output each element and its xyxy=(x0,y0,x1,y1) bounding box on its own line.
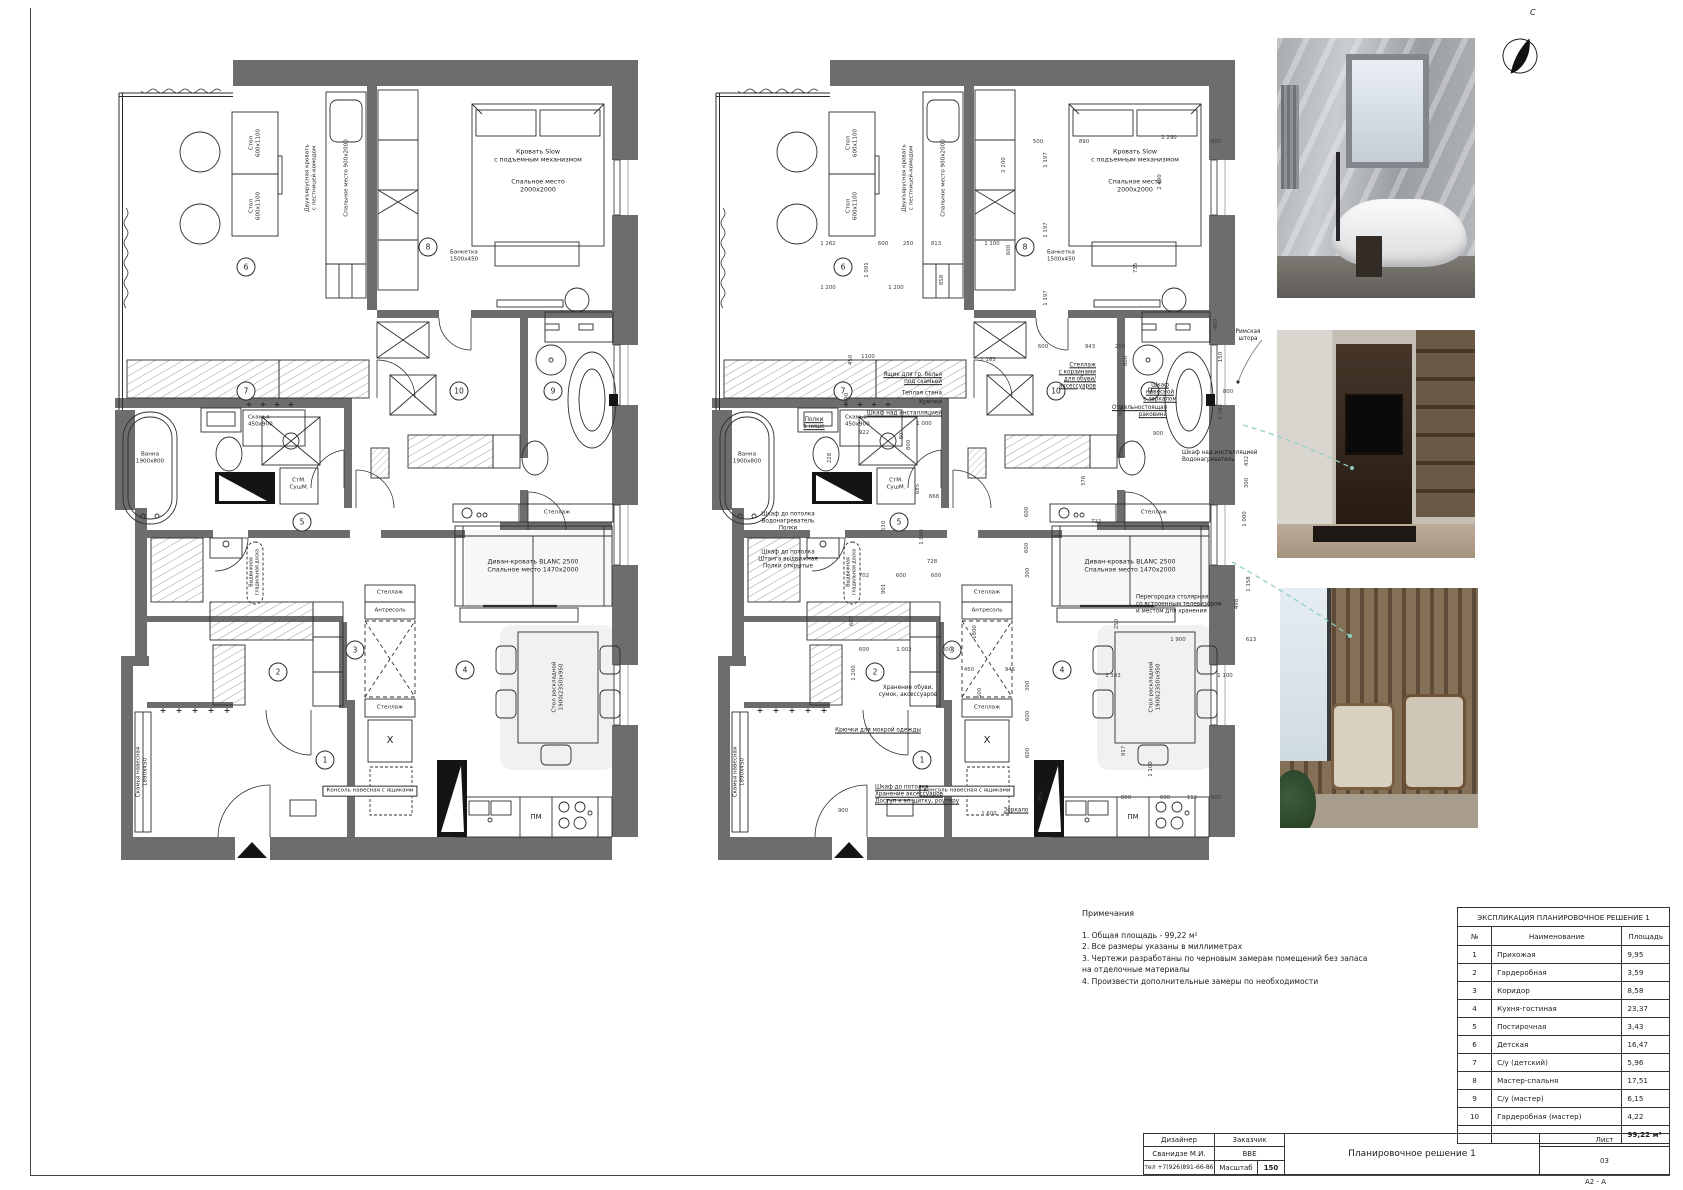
bath-window xyxy=(1346,54,1429,168)
room-number: 3 xyxy=(943,641,962,660)
plan-label: Кровать Slow с подъемным механизмом xyxy=(1091,148,1179,163)
table-row: 10Гардеробная (мастер)4,22 xyxy=(1458,1108,1670,1126)
dimension-label: 2 200 xyxy=(1001,157,1007,172)
dimension-label: 150 xyxy=(1218,352,1224,362)
dimension-label: 1 200 xyxy=(851,665,857,680)
room-number: 5 xyxy=(293,513,312,532)
room-number: 10 xyxy=(450,382,469,401)
dimension-label: 1 600 xyxy=(981,811,996,817)
dimension-label: 722 xyxy=(1091,519,1101,525)
legend-col-num: № xyxy=(1458,927,1492,946)
annotation-label: Шкаф до потолка Штанга выдвижная Полки о… xyxy=(758,550,817,571)
plan-label: X xyxy=(387,735,394,747)
room-number: 8 xyxy=(419,238,438,257)
plan-label: Ванна 1900х800 xyxy=(136,451,164,464)
room-number: 1 xyxy=(913,751,932,770)
floor-plan-left-labels: Стол 600х1100Стол 600х1100Двухъярусная к… xyxy=(115,60,640,860)
dimension-label: 500 xyxy=(1033,139,1043,145)
plan-label: Двухъярусная кровать с лестницей-комодом xyxy=(304,144,317,211)
table-row: 6Детская16,47 xyxy=(1458,1036,1670,1054)
client-name: ВВЕ xyxy=(1214,1146,1285,1161)
plan-label: ПМ xyxy=(530,813,541,821)
annotation-label: Зеркало xyxy=(1004,808,1029,815)
notes-title: Примечания xyxy=(1082,908,1382,920)
dimension-label: 450 xyxy=(964,667,974,673)
annotation-label: Ящик для гр. белья под скамьей xyxy=(883,372,942,386)
designer-name: Сванидзе М.И. xyxy=(1143,1146,1215,1161)
dimension-label: 250 xyxy=(1115,344,1125,350)
note-line: 1. Общая площадь - 99,22 м² xyxy=(1082,930,1382,941)
dimension-label: 1 700 xyxy=(1218,404,1224,419)
dimension-label: 1 000 xyxy=(916,421,931,427)
plan-label: Консоль навесная с ящиками xyxy=(322,786,417,797)
dimension-label: 1 000 xyxy=(1242,511,1248,526)
dimension-label: 852 xyxy=(1038,791,1044,801)
notes-block: Примечания 1. Общая площадь - 99,22 м² 2… xyxy=(1082,908,1382,987)
plan-label: Стол 600х1100 xyxy=(845,129,858,157)
legend-col-area: Площадь xyxy=(1622,927,1670,946)
dimension-label: 943 xyxy=(1085,344,1095,350)
armchairs-photo xyxy=(1280,588,1478,828)
dimension-label: 80 xyxy=(899,433,905,440)
dimension-label: 600 xyxy=(896,573,906,579)
dimension-label: 668 xyxy=(929,494,939,500)
dimension-label: 498 xyxy=(1234,599,1240,609)
plan-label: Ванна 1900х800 xyxy=(733,451,761,464)
title-block: Дизайнер Заказчик Сванидзе М.И. ВВЕ тел … xyxy=(1143,1133,1670,1175)
dimension-label: 800 xyxy=(1121,795,1131,801)
plan-label: Банкетка 1500х450 xyxy=(450,249,478,262)
dimension-label: 1 100 xyxy=(1217,673,1232,679)
north-letter: С xyxy=(1530,8,1536,17)
dimension-label: 600 xyxy=(1119,447,1125,457)
dimension-label: 917 xyxy=(1121,746,1127,756)
tv-screen xyxy=(1345,394,1402,456)
plan-label: Антресоль xyxy=(374,608,405,615)
dimension-label: 600 xyxy=(1024,507,1030,517)
dimension-label: 1 900 xyxy=(1170,637,1185,643)
dimension-label: 938 xyxy=(1118,406,1124,416)
plan-label: Стеллаж xyxy=(377,705,403,712)
dimension-label: 900 xyxy=(1153,431,1163,437)
dimension-label: 600 xyxy=(1024,543,1030,553)
room-legend-table: ЭКСПЛИКАЦИЯ ПЛАНИРОВОЧНОЕ РЕШЕНИЕ 1 № На… xyxy=(1457,907,1670,1144)
sheet-title: Планировочное решение 1 xyxy=(1284,1133,1540,1175)
room-number: 6 xyxy=(834,258,853,277)
plan-label: Скамья навесная 1890х450 xyxy=(732,747,745,798)
table-row: 2Гардеробная3,59 xyxy=(1458,964,1670,982)
faucet-shape xyxy=(1336,152,1340,240)
sheet-frame-bottom xyxy=(30,1175,1670,1176)
dimension-label: 1 197 xyxy=(1043,222,1049,237)
dimension-label: 728 xyxy=(927,559,937,565)
dimension-label: 800 xyxy=(1123,356,1129,366)
plan-label: Диван-кровать BLANC 2500 Спальное место … xyxy=(487,558,578,573)
dimension-label: 687 xyxy=(849,616,855,626)
plan-label: Стол 600х1100 xyxy=(248,192,261,220)
dimension-label: 1 060 xyxy=(919,529,925,544)
note-line: на отделочные материалы xyxy=(1082,964,1382,975)
legend-col-name: Наименование xyxy=(1492,927,1622,946)
table-row: 5Постирочная3,43 xyxy=(1458,1018,1670,1036)
bathroom-photo xyxy=(1277,38,1475,298)
note-line: 4. Произвести дополнительные замеры по н… xyxy=(1082,976,1382,987)
annotation-label: Римская штора xyxy=(1236,329,1261,343)
plan-label: Спальное место 2000х2000 xyxy=(1108,178,1162,193)
annotation-label: Перегородка столярная со встроенным теле… xyxy=(1136,595,1222,616)
dimension-label: 800 xyxy=(1223,389,1233,395)
dimension-label: 922 xyxy=(859,430,869,436)
dimension-label: 1 002 xyxy=(896,647,911,653)
legend-title: ЭКСПЛИКАЦИЯ ПЛАНИРОВОЧНОЕ РЕШЕНИЕ 1 xyxy=(1458,908,1670,927)
plan-label: Скамья навесная 1890х450 xyxy=(135,747,148,798)
client-label: Заказчик xyxy=(1214,1133,1285,1147)
plan-label: Стеллаж xyxy=(544,510,570,517)
annotation-label: Теплая стена xyxy=(902,391,942,398)
annotation-label: Хранение обуви, сумок, аксессуаров xyxy=(879,685,937,699)
dimension-label: 800 xyxy=(906,440,912,450)
dimension-label: 530 xyxy=(881,521,887,531)
dimension-label: 1 100 xyxy=(984,241,999,247)
dimension-label: 1800 xyxy=(972,625,978,639)
plan-label: Банкетка 1500х450 xyxy=(1047,249,1075,262)
room-number: 5 xyxy=(890,513,909,532)
shelf-wall xyxy=(1416,330,1475,517)
plan-label: Стол 600х1100 xyxy=(248,129,261,157)
annotation-label: Полки в нише xyxy=(803,417,824,431)
armchair-2 xyxy=(1403,694,1466,790)
dimension-label: 1 197 xyxy=(1043,152,1049,167)
dimension-label: 400 xyxy=(1213,319,1219,329)
north-arrow: С xyxy=(1492,8,1548,92)
floor-plan-right-labels: Стол 600х1100Стол 600х1100Двухъярусная к… xyxy=(712,60,1272,860)
dimension-label: 432 xyxy=(1244,456,1250,466)
drawing-sheet: С xyxy=(0,0,1683,1190)
armchair-1 xyxy=(1331,703,1394,789)
note-line: 2. Все размеры указаны в миллиметрах xyxy=(1082,941,1382,952)
dimension-label: 1 100 xyxy=(1148,761,1154,776)
dimension-label: 600 xyxy=(1006,245,1012,255)
plan-label: Выдвижная гладильная доска xyxy=(249,549,261,595)
dimension-label: 1100 xyxy=(861,354,875,360)
plan-label: СтМ. СушМ. xyxy=(290,477,309,490)
annotation-label: Шкаф над инсталляцией xyxy=(867,411,942,418)
dimension-label: 1 200 xyxy=(888,285,903,291)
dimension-label: 1 091 xyxy=(864,262,870,277)
format-label: A2 - A xyxy=(1585,1178,1606,1186)
plan-label: Стеллаж xyxy=(377,590,403,597)
dimension-label: 1 262 xyxy=(820,241,835,247)
table-row: 9С/у (мастер)6,15 xyxy=(1458,1090,1670,1108)
dimension-label: 1 197 xyxy=(1043,290,1049,305)
designer-label: Дизайнер xyxy=(1143,1133,1215,1147)
room-number: 3 xyxy=(346,641,365,660)
dimension-label: 735 xyxy=(1133,263,1139,273)
plan-label: Стол 600х1100 xyxy=(845,192,858,220)
room-number: 7 xyxy=(834,382,853,401)
bench-shape xyxy=(1313,526,1416,542)
dimension-label: 500 xyxy=(977,688,983,698)
dimension-label: 900 xyxy=(838,808,848,814)
dimension-label: 300 xyxy=(1025,568,1031,578)
room-number: 6 xyxy=(237,258,256,277)
dimension-label: 890 xyxy=(844,393,850,403)
plan-label: Стол раскладной 1900(2350)х950 xyxy=(1148,662,1161,713)
scale-value: 150 xyxy=(1257,1160,1285,1175)
dimension-label: 685 xyxy=(915,484,921,494)
room-number: 9 xyxy=(544,382,563,401)
table-row: 8Мастер-спальня17,51 xyxy=(1458,1072,1670,1090)
dimension-label: 1 200 xyxy=(820,285,835,291)
plan-label: Стеллаж xyxy=(974,590,1000,597)
table-row: 7С/у (детский)5,96 xyxy=(1458,1054,1670,1072)
bathtub-shape xyxy=(1332,199,1467,267)
dimension-label: 600 xyxy=(1038,344,1048,350)
dimension-label: 2 290 xyxy=(1161,135,1176,141)
annotation-label: Шкаф над инсталляцией Водонагреватель xyxy=(1182,450,1257,464)
plan-label: Антресоль xyxy=(971,608,1002,615)
plan-label: Диван-кровать BLANC 2500 Спальное место … xyxy=(1084,558,1175,573)
dimension-label: 600 xyxy=(1025,748,1031,758)
dimension-label: 300 xyxy=(1244,478,1250,488)
room-number: 7 xyxy=(237,382,256,401)
plan-label: СтМ. СушМ. xyxy=(887,477,906,490)
table-row: 1Прихожая9,95 xyxy=(1458,946,1670,964)
note-line: 3. Чертежи разработаны по черновым замер… xyxy=(1082,953,1382,964)
dimension-label: 813 xyxy=(931,241,941,247)
room-number: 9 xyxy=(1141,382,1160,401)
dimension-label: 2 490 xyxy=(1157,174,1163,189)
room-number: 8 xyxy=(1016,238,1035,257)
dimension-label: 600 xyxy=(878,241,888,247)
dimension-label: 1 383 xyxy=(1105,673,1120,679)
plan-label: Скамья 450х900 xyxy=(845,414,870,427)
dimension-label: 450 xyxy=(848,355,854,365)
room-number: 2 xyxy=(866,663,885,682)
annotation-label: Шкаф навесной с зеркалом xyxy=(1143,383,1176,404)
annotation-label: Крючки для мокрой одежды xyxy=(835,728,921,735)
annotation-label: Отдельностоящая раковина xyxy=(1112,405,1167,419)
plan-label: Кровать Slow с подъемным механизмом xyxy=(494,148,582,163)
compass-icon xyxy=(1492,8,1548,92)
plan-label: Стеллаж xyxy=(974,705,1000,712)
room-number: 1 xyxy=(316,751,335,770)
dimension-label: 901 xyxy=(881,584,887,594)
dimension-label: 600 xyxy=(859,647,869,653)
plan-label: Спальное место 900х2000 xyxy=(941,139,948,217)
sheet-number: 03 xyxy=(1539,1146,1670,1175)
sheet-label: Лист xyxy=(1539,1133,1670,1147)
annotation-label: Стеллаж с корзинами для обуви/ аксессуар… xyxy=(1059,362,1096,389)
plan-label: Спальное место 2000х2000 xyxy=(511,178,565,193)
scale-label: Масштаб xyxy=(1214,1160,1258,1175)
dimension-label: 600 xyxy=(1211,139,1221,145)
designer-phone: тел +7(926)891-66-86 xyxy=(1143,1160,1215,1175)
dimension-label: 228 xyxy=(827,453,833,463)
table-row: 4Кухня-гостиная23,37 xyxy=(1458,1000,1670,1018)
room-number: 10 xyxy=(1047,382,1066,401)
dimension-label: 300 xyxy=(1025,681,1031,691)
plan-label: Стол раскладной 1900(2350)х950 xyxy=(551,662,564,713)
plan-label: ПМ xyxy=(1127,813,1138,821)
dimension-label: 250 xyxy=(1114,619,1120,629)
dimension-label: 112 xyxy=(1187,795,1197,801)
room-number: 2 xyxy=(269,663,288,682)
dimension-label: 600 xyxy=(931,573,941,579)
dimension-label: 858 xyxy=(939,275,945,285)
room-number: 4 xyxy=(456,661,475,680)
annotation-label: Шкаф до потолка Водонагреватель Полки xyxy=(761,512,814,533)
dimension-label: 600 xyxy=(1160,795,1170,801)
dimension-label: 1 158 xyxy=(1246,576,1252,591)
dimension-label: 623 xyxy=(1246,637,1256,643)
dimension-label: 300 xyxy=(942,647,952,653)
room-number: 4 xyxy=(1053,661,1072,680)
plan-label: Выдвижная гладильная доска xyxy=(846,549,858,595)
plan-label: Спальное место 900х2000 xyxy=(344,139,351,217)
table-row: 3Коридор8,58 xyxy=(1458,982,1670,1000)
dimension-label: 945 xyxy=(1005,667,1015,673)
floor-plan-right: Стол 600х1100Стол 600х1100Двухъярусная к… xyxy=(712,60,1272,860)
tv-wall-photo xyxy=(1277,330,1475,558)
window-strip xyxy=(1280,588,1331,761)
dimension-label: 1 163 xyxy=(980,357,995,363)
dimension-label: 250 xyxy=(903,241,913,247)
plan-label: Двухъярусная кровать с лестницей-комодом xyxy=(901,144,914,211)
stool-shape xyxy=(1356,236,1382,278)
dimension-label: 600 xyxy=(1025,711,1031,721)
plan-label: Консоль навесная с ящиками xyxy=(919,786,1014,797)
floor-plan-left: Стол 600х1100Стол 600х1100Двухъярусная к… xyxy=(115,60,640,860)
dimension-label: 702 xyxy=(859,573,869,579)
annotation-label: Крючки xyxy=(919,400,942,407)
radiator xyxy=(1281,85,1299,189)
dimension-label: 890 xyxy=(1079,139,1089,145)
plan-label: Скамья 450х900 xyxy=(248,414,273,427)
sheet-frame-left xyxy=(30,8,31,1175)
dimension-label: 600 xyxy=(1211,795,1221,801)
annotation-label: Шкаф до потолка Хранение аксессуаров Дос… xyxy=(875,785,959,806)
plan-label: X xyxy=(984,735,991,747)
dimension-label: 376 xyxy=(1081,476,1087,486)
plan-label: Стеллаж xyxy=(1141,510,1167,517)
